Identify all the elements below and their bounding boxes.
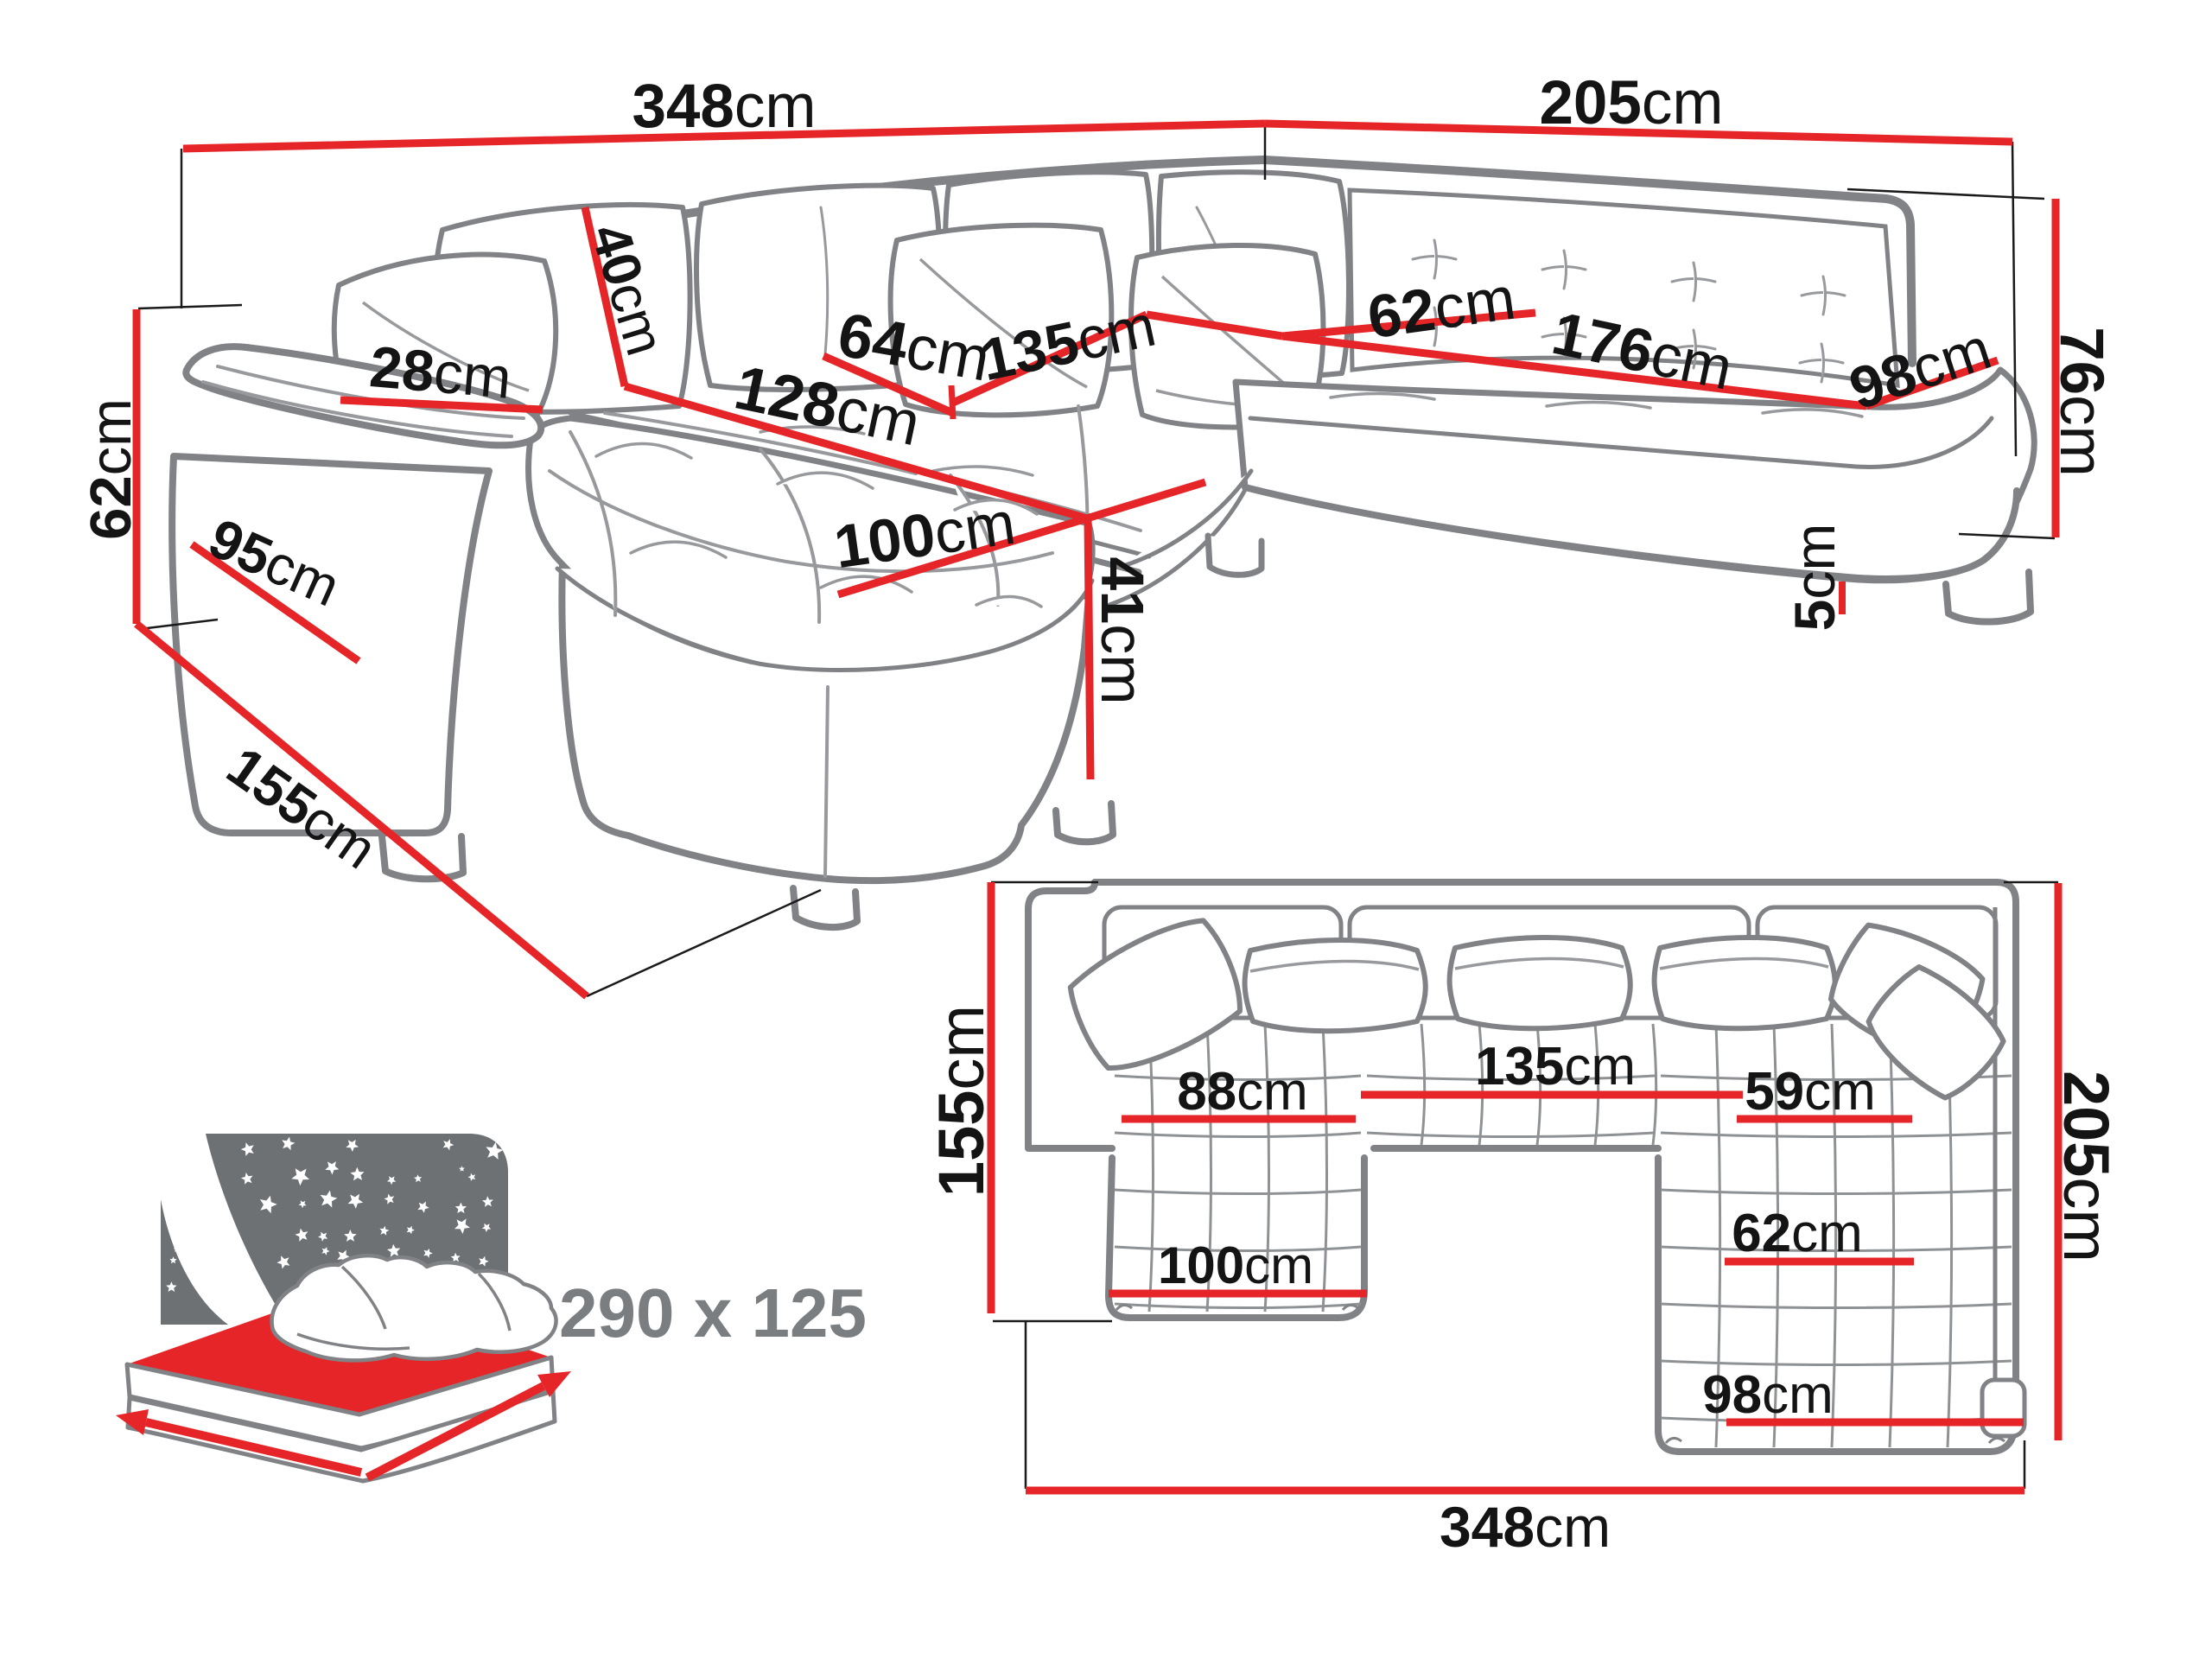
svg-text:100cm: 100cm bbox=[1158, 1236, 1313, 1294]
svg-text:290 x 125: 290 x 125 bbox=[559, 1274, 867, 1351]
svg-text:88cm: 88cm bbox=[1177, 1062, 1308, 1122]
svg-text:28cm: 28cm bbox=[367, 334, 514, 411]
svg-text:62cm: 62cm bbox=[1732, 1204, 1863, 1263]
svg-text:5cm: 5cm bbox=[1783, 524, 1847, 632]
svg-text:205cm: 205cm bbox=[1539, 69, 1723, 137]
svg-text:41cm: 41cm bbox=[1089, 556, 1156, 704]
svg-text:348cm: 348cm bbox=[1440, 1495, 1611, 1559]
svg-text:98cm: 98cm bbox=[1702, 1365, 1834, 1425]
svg-text:62cm: 62cm bbox=[79, 398, 143, 540]
svg-text:205cm: 205cm bbox=[2050, 1071, 2122, 1262]
svg-text:135cm: 135cm bbox=[1475, 1037, 1636, 1096]
svg-text:348cm: 348cm bbox=[632, 73, 816, 141]
svg-text:76cm: 76cm bbox=[2047, 327, 2115, 477]
svg-text:59cm: 59cm bbox=[1745, 1062, 1876, 1122]
svg-text:155cm: 155cm bbox=[925, 1005, 997, 1197]
